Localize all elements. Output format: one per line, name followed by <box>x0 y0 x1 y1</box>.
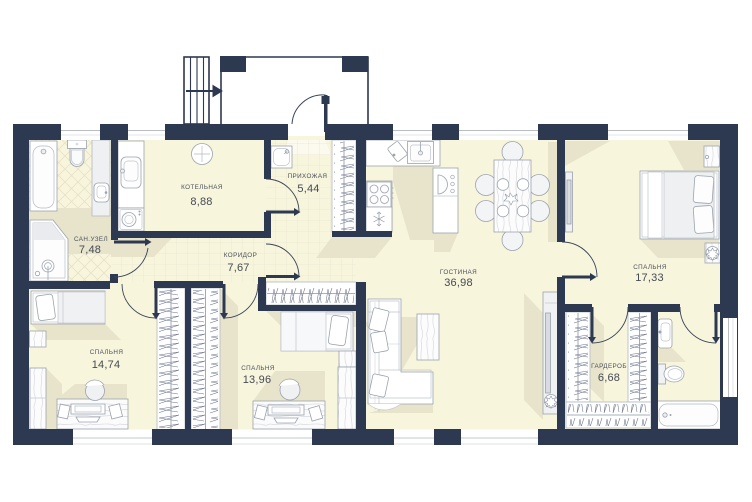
svg-text:СПАЛЬНЯ: СПАЛЬНЯ <box>90 349 124 356</box>
svg-text:17,33: 17,33 <box>635 272 664 284</box>
svg-text:ГАРДЕРОБ: ГАРДЕРОБ <box>591 363 627 370</box>
svg-text:ГОСТИНАЯ: ГОСТИНАЯ <box>440 269 477 276</box>
svg-text:8,88: 8,88 <box>190 196 212 208</box>
svg-text:6,68: 6,68 <box>598 372 620 384</box>
svg-text:СПАЛЬНЯ: СПАЛЬНЯ <box>241 365 275 372</box>
svg-text:САН.УЗЕЛ: САН.УЗЕЛ <box>74 236 108 243</box>
svg-text:14,74: 14,74 <box>92 359 121 371</box>
svg-text:СПАЛЬНЯ: СПАЛЬНЯ <box>633 264 667 271</box>
svg-text:ПРИХОЖАЯ: ПРИХОЖАЯ <box>288 173 328 180</box>
svg-text:36,98: 36,98 <box>444 277 473 289</box>
svg-text:5,44: 5,44 <box>297 183 319 195</box>
svg-text:КОТЕЛЬНАЯ: КОТЕЛЬНАЯ <box>181 184 223 191</box>
svg-text:7,48: 7,48 <box>79 244 101 256</box>
svg-text:7,67: 7,67 <box>227 262 249 274</box>
svg-text:КОРИДОР: КОРИДОР <box>224 252 257 259</box>
svg-text:13,96: 13,96 <box>243 374 272 386</box>
